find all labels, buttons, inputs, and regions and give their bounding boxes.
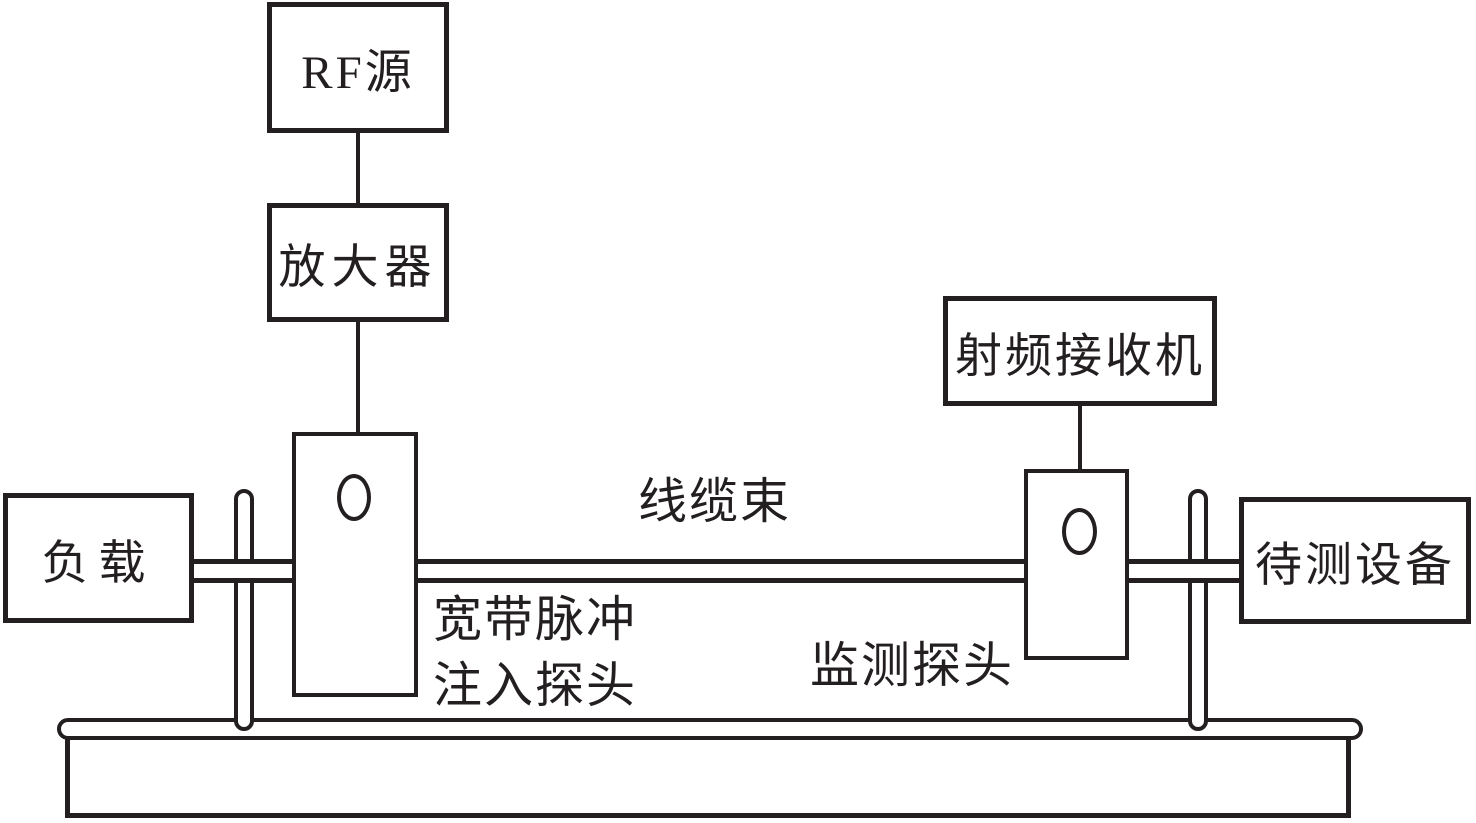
cable-support-post-left [234, 489, 254, 731]
rf-source-box: RF源 [267, 2, 449, 133]
cable-support-post-right [1188, 489, 1208, 731]
monitor-probe [1024, 469, 1129, 660]
injection-probe [292, 432, 418, 697]
rf-receiver-box: 射频接收机 [943, 296, 1217, 406]
injection-probe-label-line2: 注入探头 [433, 653, 637, 719]
amplifier-box: 放大器 [267, 203, 449, 322]
amplifier-label: 放大器 [279, 228, 438, 297]
injection-probe-aperture-icon [337, 474, 371, 521]
device-under-test-label: 待测设备 [1255, 526, 1455, 595]
receiver-to-monitor-probe-connector [1078, 403, 1082, 471]
table-body [65, 735, 1351, 818]
rf-source-label: RF源 [301, 33, 415, 102]
device-under-test-box: 待测设备 [1239, 497, 1471, 624]
bci-test-setup-diagram: RF源 放大器 射频接收机 负载 待测设备 线缆束 宽带脉冲 注入探头 监测探头 [0, 0, 1476, 823]
rf-receiver-label: 射频接收机 [955, 317, 1205, 386]
injection-probe-label: 宽带脉冲 注入探头 [433, 587, 637, 719]
cable-bundle-label: 线缆束 [638, 462, 791, 533]
load-box: 负载 [3, 493, 194, 623]
injection-probe-label-line1: 宽带脉冲 [433, 587, 637, 653]
load-label: 负载 [42, 524, 156, 593]
monitor-probe-label: 监测探头 [810, 626, 1014, 697]
amplifier-to-injection-probe-connector [356, 320, 360, 434]
rf-source-to-amplifier-connector [356, 130, 360, 206]
monitor-probe-aperture-icon [1062, 508, 1097, 555]
